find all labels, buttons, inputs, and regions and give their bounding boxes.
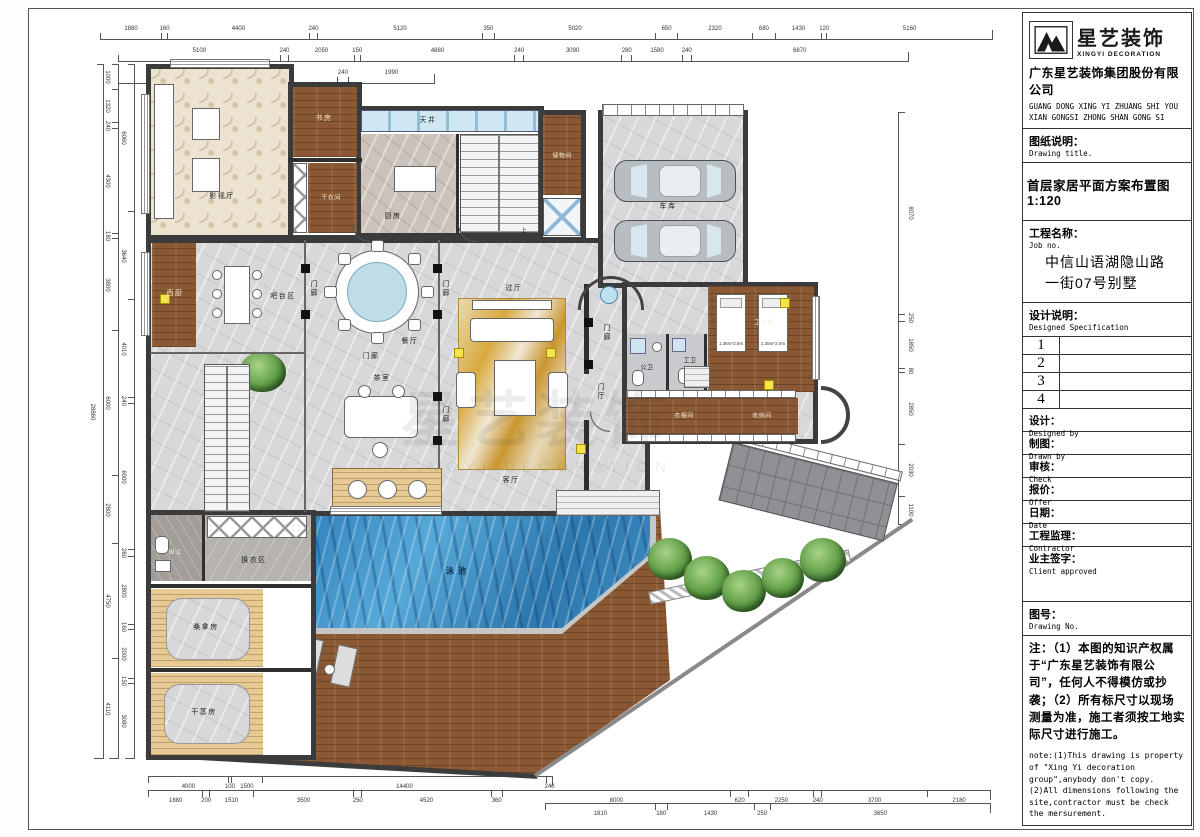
dimension-segment: 1430 <box>667 804 754 810</box>
company-name-cn: 广东星艺装饰集团股份有限公司 <box>1029 64 1185 98</box>
dimension-segment: 4300 <box>112 128 118 232</box>
window <box>141 252 150 336</box>
room-label-porch: 门廊 <box>308 280 318 298</box>
dimension-segment: 8000 <box>502 791 730 797</box>
chair <box>212 270 222 280</box>
wall <box>151 668 311 672</box>
project-section: 工程名称： Job no. 中信山语湖隐山路 一街07号别墅 <box>1023 221 1191 303</box>
spec-row-number: 1 <box>1023 337 1060 354</box>
car <box>614 220 736 262</box>
car <box>614 160 736 202</box>
chair <box>338 253 351 265</box>
cabinet-row <box>626 434 796 442</box>
room-label-pass-hall: 过厅 <box>506 283 523 293</box>
field-cn: 日期： <box>1029 507 1061 519</box>
downlight <box>764 380 774 390</box>
dimension-segment: 620 <box>730 791 749 797</box>
wall <box>456 134 459 234</box>
field-contractor: 工程监理： Contractor <box>1023 524 1191 547</box>
company-section: 星艺装饰 XINGYI DECORATION 广东星艺装饰集团股份有限公司 GU… <box>1023 13 1191 129</box>
downlight <box>780 298 790 308</box>
coffee-table <box>494 360 536 416</box>
skylight-glass <box>361 110 539 132</box>
stool <box>378 480 397 499</box>
window <box>141 94 150 214</box>
wall <box>666 334 669 392</box>
armchair <box>456 372 476 408</box>
fountain <box>600 286 618 304</box>
dimension-segment: 240 <box>280 55 289 61</box>
spec-row-number: 2 <box>1023 355 1060 372</box>
chair <box>252 289 262 299</box>
room-label-cloak: 衣帽间 <box>674 411 694 420</box>
dimension-segment: 4750 <box>112 543 118 658</box>
drawing-title-label-section: 图纸说明： Drawing title. <box>1023 129 1191 163</box>
kitchen-island <box>394 166 436 192</box>
chair <box>212 308 222 318</box>
dimension-segment: 6870 <box>691 55 909 61</box>
dimension-segment: 650 <box>655 33 677 39</box>
wall-line <box>150 352 306 354</box>
room-label-porch: 门廊 <box>601 324 611 342</box>
dimension-segment: 250 <box>754 804 770 810</box>
xingyi-logo-icon <box>1029 21 1073 59</box>
downlight <box>576 444 586 454</box>
car-windshield <box>631 224 647 258</box>
field-cn: 业主签字： <box>1029 553 1082 565</box>
dimension-segment: 240 <box>682 55 691 61</box>
dimension-segment: 1500 <box>231 777 262 783</box>
dimension-segment: 14400 <box>262 777 547 783</box>
car-rear-glass <box>707 224 721 258</box>
pillar <box>584 360 593 369</box>
field-offer: 报价： Offer <box>1023 478 1191 501</box>
dimension-segment: 2320 <box>677 33 752 39</box>
sink <box>155 560 171 572</box>
stool <box>408 480 427 499</box>
chair <box>392 385 405 398</box>
cinema-seat <box>192 108 220 140</box>
logo-subtext: XINGYI DECORATION <box>1077 51 1165 58</box>
pillar <box>433 310 442 319</box>
dimension-segment: 2850 <box>899 372 905 444</box>
closet <box>293 163 307 233</box>
field-date: 日期： Date <box>1023 501 1191 524</box>
dimension-col-left-1: 28860 <box>94 64 104 759</box>
room-label-sauna: 桑拿房 <box>193 622 219 632</box>
room-label-west-kitchen: 西厨 <box>167 288 184 298</box>
chair <box>324 286 337 298</box>
dimension-segment: 28860 <box>97 64 103 758</box>
dimension-segment: 3080 <box>128 683 134 758</box>
dimension-segment: 3500 <box>253 791 353 797</box>
car-rear-glass <box>707 164 721 198</box>
window <box>170 59 270 68</box>
toilet <box>155 536 169 554</box>
stair-rail <box>498 136 500 231</box>
room-label-living: 客厅 <box>503 475 520 485</box>
room-label-skylight: 天井 <box>420 115 437 125</box>
room-label-steam: 干蒸房 <box>191 707 217 717</box>
drawing-no-section: 图号： Drawing No. <box>1023 602 1191 636</box>
bed-size-label: 1.35m*2.0m <box>719 341 743 346</box>
room-label-bar-area: 吧台区 <box>270 291 296 301</box>
dimension-segment: 250 <box>899 314 905 321</box>
project-label-en: Job no. <box>1029 241 1185 250</box>
spec-row-4: 4 <box>1023 391 1191 409</box>
dimension-segment: 6060 <box>128 64 134 211</box>
drawing-title-label-en: Drawing title. <box>1029 149 1185 158</box>
dimension-col-left-2: 10001320240430018038006000280047504110 <box>109 64 119 759</box>
field-cn: 报价： <box>1029 484 1061 496</box>
dimension-segment: 2800 <box>128 556 134 624</box>
room-label-wc-staff: 工卫 <box>683 356 696 365</box>
chair <box>421 286 434 298</box>
chair <box>371 240 384 252</box>
project-label-cn: 工程名称： <box>1029 225 1185 241</box>
dimension-segment: 2800 <box>112 475 118 543</box>
dimension-segment: 1100 <box>899 496 905 524</box>
dimension-segment: 4000 <box>148 777 228 783</box>
dimension-segment: 5120 <box>317 33 481 39</box>
dimension-col-right-1: 8070250185080285020301100 <box>898 112 908 525</box>
dimension-segment: 4010 <box>128 299 134 396</box>
cinema-sofa <box>154 84 174 219</box>
note-en: note:(1)This drawing is property of "Xin… <box>1029 750 1185 820</box>
spec-row-number: 4 <box>1023 391 1060 408</box>
downlight <box>454 348 464 358</box>
dimension-segment: 1430 <box>775 33 822 39</box>
project-name-line1: 中信山语湖隐山路 <box>1045 252 1185 273</box>
sink <box>652 342 662 352</box>
room-label-storage2: 收纳间 <box>752 411 772 420</box>
project-name: 中信山语湖隐山路 一街07号别墅 <box>1029 250 1185 298</box>
room-label-porch: 门廊 <box>440 406 450 424</box>
dimension-segment: 1810 <box>545 804 655 810</box>
elevator <box>543 198 581 236</box>
shower <box>672 338 686 352</box>
dimension-segment: 680 <box>752 33 775 39</box>
pillar <box>584 318 593 327</box>
spec-row-3: 3 <box>1023 373 1191 391</box>
chair <box>252 308 262 318</box>
dimension-segment: 260 <box>128 549 134 556</box>
drawing-title-label-cn: 图纸说明： <box>1029 133 1185 149</box>
room-label-changing: 换衣区 <box>241 555 267 565</box>
small-steps <box>684 366 710 388</box>
spec-row-number: 3 <box>1023 373 1060 390</box>
dimension-segment: 250 <box>353 791 361 797</box>
dimension-segment: 3640 <box>128 211 134 300</box>
bar-island <box>224 266 250 324</box>
wall <box>202 515 205 581</box>
stair-rail <box>226 366 228 510</box>
floor-plan: 1880160440024051203505020650232068014301… <box>0 0 1010 837</box>
tea-table <box>344 396 418 438</box>
dimension-segment: 200 <box>202 791 209 797</box>
pillow <box>720 298 742 308</box>
chair <box>212 289 222 299</box>
dimension-segment: 1510 <box>209 791 253 797</box>
dimension-segment: 1880 <box>148 791 202 797</box>
dimension-segment: 6000 <box>112 330 118 475</box>
cabinet-row <box>626 390 796 398</box>
car-windshield <box>631 164 647 198</box>
spec-label-en: Designed Specification <box>1029 323 1185 332</box>
chair <box>372 442 388 458</box>
dimension-segment: 1850 <box>899 321 905 368</box>
field-designed-by: 设计： Designed by <box>1023 409 1191 432</box>
dimension-row-bottom-3: 181018014302503650 <box>545 803 991 813</box>
dimension-segment: 3700 <box>821 791 927 797</box>
field-cn: 设计： <box>1029 415 1061 427</box>
spec-section: 设计说明： Designed Specification <box>1023 303 1191 337</box>
window <box>812 296 820 380</box>
chair <box>408 319 421 331</box>
dimension-segment: 3650 <box>770 804 990 810</box>
company-name-en: GUANG DONG XING YI ZHUANG SHI YOU XIAN G… <box>1029 101 1185 124</box>
dimension-segment: 1000 <box>112 64 118 89</box>
tv-console <box>472 300 552 310</box>
garage-door <box>602 104 744 116</box>
note-cn: 注：（1）本图的知识产权属于“广东星艺装饰有限公司”，任何人不得模仿或抄袭；（2… <box>1029 641 1185 745</box>
dimension-segment: 4520 <box>361 791 490 797</box>
dimension-segment: 240 <box>112 122 118 129</box>
stool <box>348 480 367 499</box>
chair <box>371 332 384 344</box>
wall <box>151 584 311 588</box>
dining-table-top <box>347 262 407 322</box>
company-en-line2: XIAN GONGSI ZHONG SHAN GONG SI <box>1029 112 1185 123</box>
pillar <box>301 264 310 273</box>
chair <box>408 253 421 265</box>
dimension-segment: 1880 <box>100 33 161 39</box>
stair-up-label: 上 <box>521 226 528 235</box>
room-label-laundry: 干衣间 <box>321 193 341 202</box>
drawing-no-en: Drawing No. <box>1029 622 1185 631</box>
dimension-row-bottom-1: 4000100150014400240 <box>148 776 553 786</box>
tree <box>762 558 804 598</box>
dimension-segment: 8070 <box>899 112 905 314</box>
field-drawn-by: 制图： Drawn by <box>1023 432 1191 455</box>
dimension-segment: 5020 <box>494 33 655 39</box>
armchair <box>548 372 568 408</box>
dimension-segment: 350 <box>482 33 494 39</box>
company-en-line1: GUANG DONG XING YI ZHUANG SHI YOU <box>1029 101 1185 112</box>
dimension-segment: 360 <box>491 791 502 797</box>
field-check: 审核： Check <box>1023 455 1191 478</box>
tree <box>722 570 766 612</box>
dimension-segment: 3090 <box>523 55 621 61</box>
spec-label-cn: 设计说明： <box>1029 307 1185 323</box>
dimension-segment: 240 <box>514 55 523 61</box>
entry-steps <box>556 490 660 516</box>
colonnade-line <box>304 240 306 512</box>
drawing-no-cn: 图号： <box>1029 606 1185 622</box>
pillar <box>433 392 442 401</box>
logo-text: 星艺装饰 <box>1077 22 1165 51</box>
dimension-segment: 240 <box>546 777 552 783</box>
room-label-tea-room: 茶室 <box>374 373 391 383</box>
room-label-dining: 餐厅 <box>402 336 419 346</box>
dimension-segment: 1580 <box>631 55 682 61</box>
car-roof <box>659 225 701 257</box>
dimension-row-bottom-2: 1880200151035002504520360800062022502403… <box>148 790 991 800</box>
dimension-segment: 280 <box>621 55 631 61</box>
field-cn: 工程监理： <box>1029 530 1082 542</box>
dimension-segment: 6000 <box>128 403 134 548</box>
room-label-foyer: 门厅 <box>595 383 605 401</box>
dimension-segment: 2180 <box>927 791 990 797</box>
spec-row-1: 1 <box>1023 337 1191 355</box>
notes-section: 注：（1）本图的知识产权属于“广东星艺装饰有限公司”，任何人不得模仿或抄袭；（2… <box>1023 636 1191 825</box>
dimension-segment: 2000 <box>128 629 134 678</box>
dimension-segment: 240 <box>813 791 821 797</box>
dimension-segment: 1320 <box>112 89 118 122</box>
pillar <box>301 310 310 319</box>
tree <box>800 538 846 582</box>
dimension-segment: 5160 <box>826 33 992 39</box>
dimension-segment: 240 <box>128 397 134 404</box>
dimension-segment: 4400 <box>167 33 308 39</box>
room-label-wc-public: 公卫 <box>640 363 653 372</box>
wall <box>288 158 362 162</box>
dimension-segment: 2050 <box>288 55 354 61</box>
room-label-pool: 泳池 <box>446 566 470 577</box>
field-cn: 制图： <box>1029 438 1061 450</box>
pillar <box>433 264 442 273</box>
chair <box>338 319 351 331</box>
chair <box>252 270 262 280</box>
spec-row-2: 2 <box>1023 355 1191 373</box>
dimension-segment: 2030 <box>899 444 905 496</box>
room-label-porch: 门廊 <box>363 351 380 361</box>
dimension-segment: 3800 <box>112 238 118 330</box>
bed-size-label: 1.35m*2.0m <box>761 341 785 346</box>
downlight <box>546 348 556 358</box>
title-block: 星艺装饰 XINGYI DECORATION 广东星艺装饰集团股份有限公司 GU… <box>1022 12 1192 826</box>
car-roof <box>659 165 701 197</box>
dimension-segment: 180 <box>655 804 667 810</box>
lockers <box>207 516 307 538</box>
sofa <box>470 318 554 342</box>
room-label-staff-room: 工人房 <box>754 318 774 327</box>
cinema-seat <box>192 158 220 192</box>
project-name-line2: 一街07号别墅 <box>1045 273 1185 294</box>
field-en: Client approved <box>1029 567 1185 576</box>
room-label-kitchen: 厨房 <box>385 211 402 221</box>
room-label-storage-top: 储物间 <box>552 151 572 160</box>
dimension-col-left-3: 6060364040102406000260280016020001503080 <box>125 64 135 759</box>
room-label-wc: W.C <box>169 550 182 556</box>
dimension-segment: 4110 <box>112 658 118 758</box>
dimension-row-top-1: 1880160440024051203505020650232068014301… <box>100 30 993 40</box>
room-label-garage: 车库 <box>660 201 677 211</box>
room-label-cinema: 影视厅 <box>209 191 235 201</box>
room-label-study: 书房 <box>316 113 333 123</box>
side-table <box>324 664 335 675</box>
chair <box>358 385 371 398</box>
toilet <box>632 370 644 386</box>
room-label-porch: 门廊 <box>440 280 450 298</box>
window <box>330 506 442 515</box>
dimension-segment: 2250 <box>748 791 813 797</box>
dimension-segment: 4880 <box>360 55 515 61</box>
field-cn: 审核： <box>1029 461 1061 473</box>
field-client-signature: 业主签字： Client approved <box>1023 547 1191 602</box>
shower <box>630 338 646 354</box>
pillar <box>433 436 442 445</box>
dimension-segment: 240 <box>309 33 318 39</box>
drawing-title: 首层家居平面方案布置图 1:120 <box>1023 163 1191 221</box>
